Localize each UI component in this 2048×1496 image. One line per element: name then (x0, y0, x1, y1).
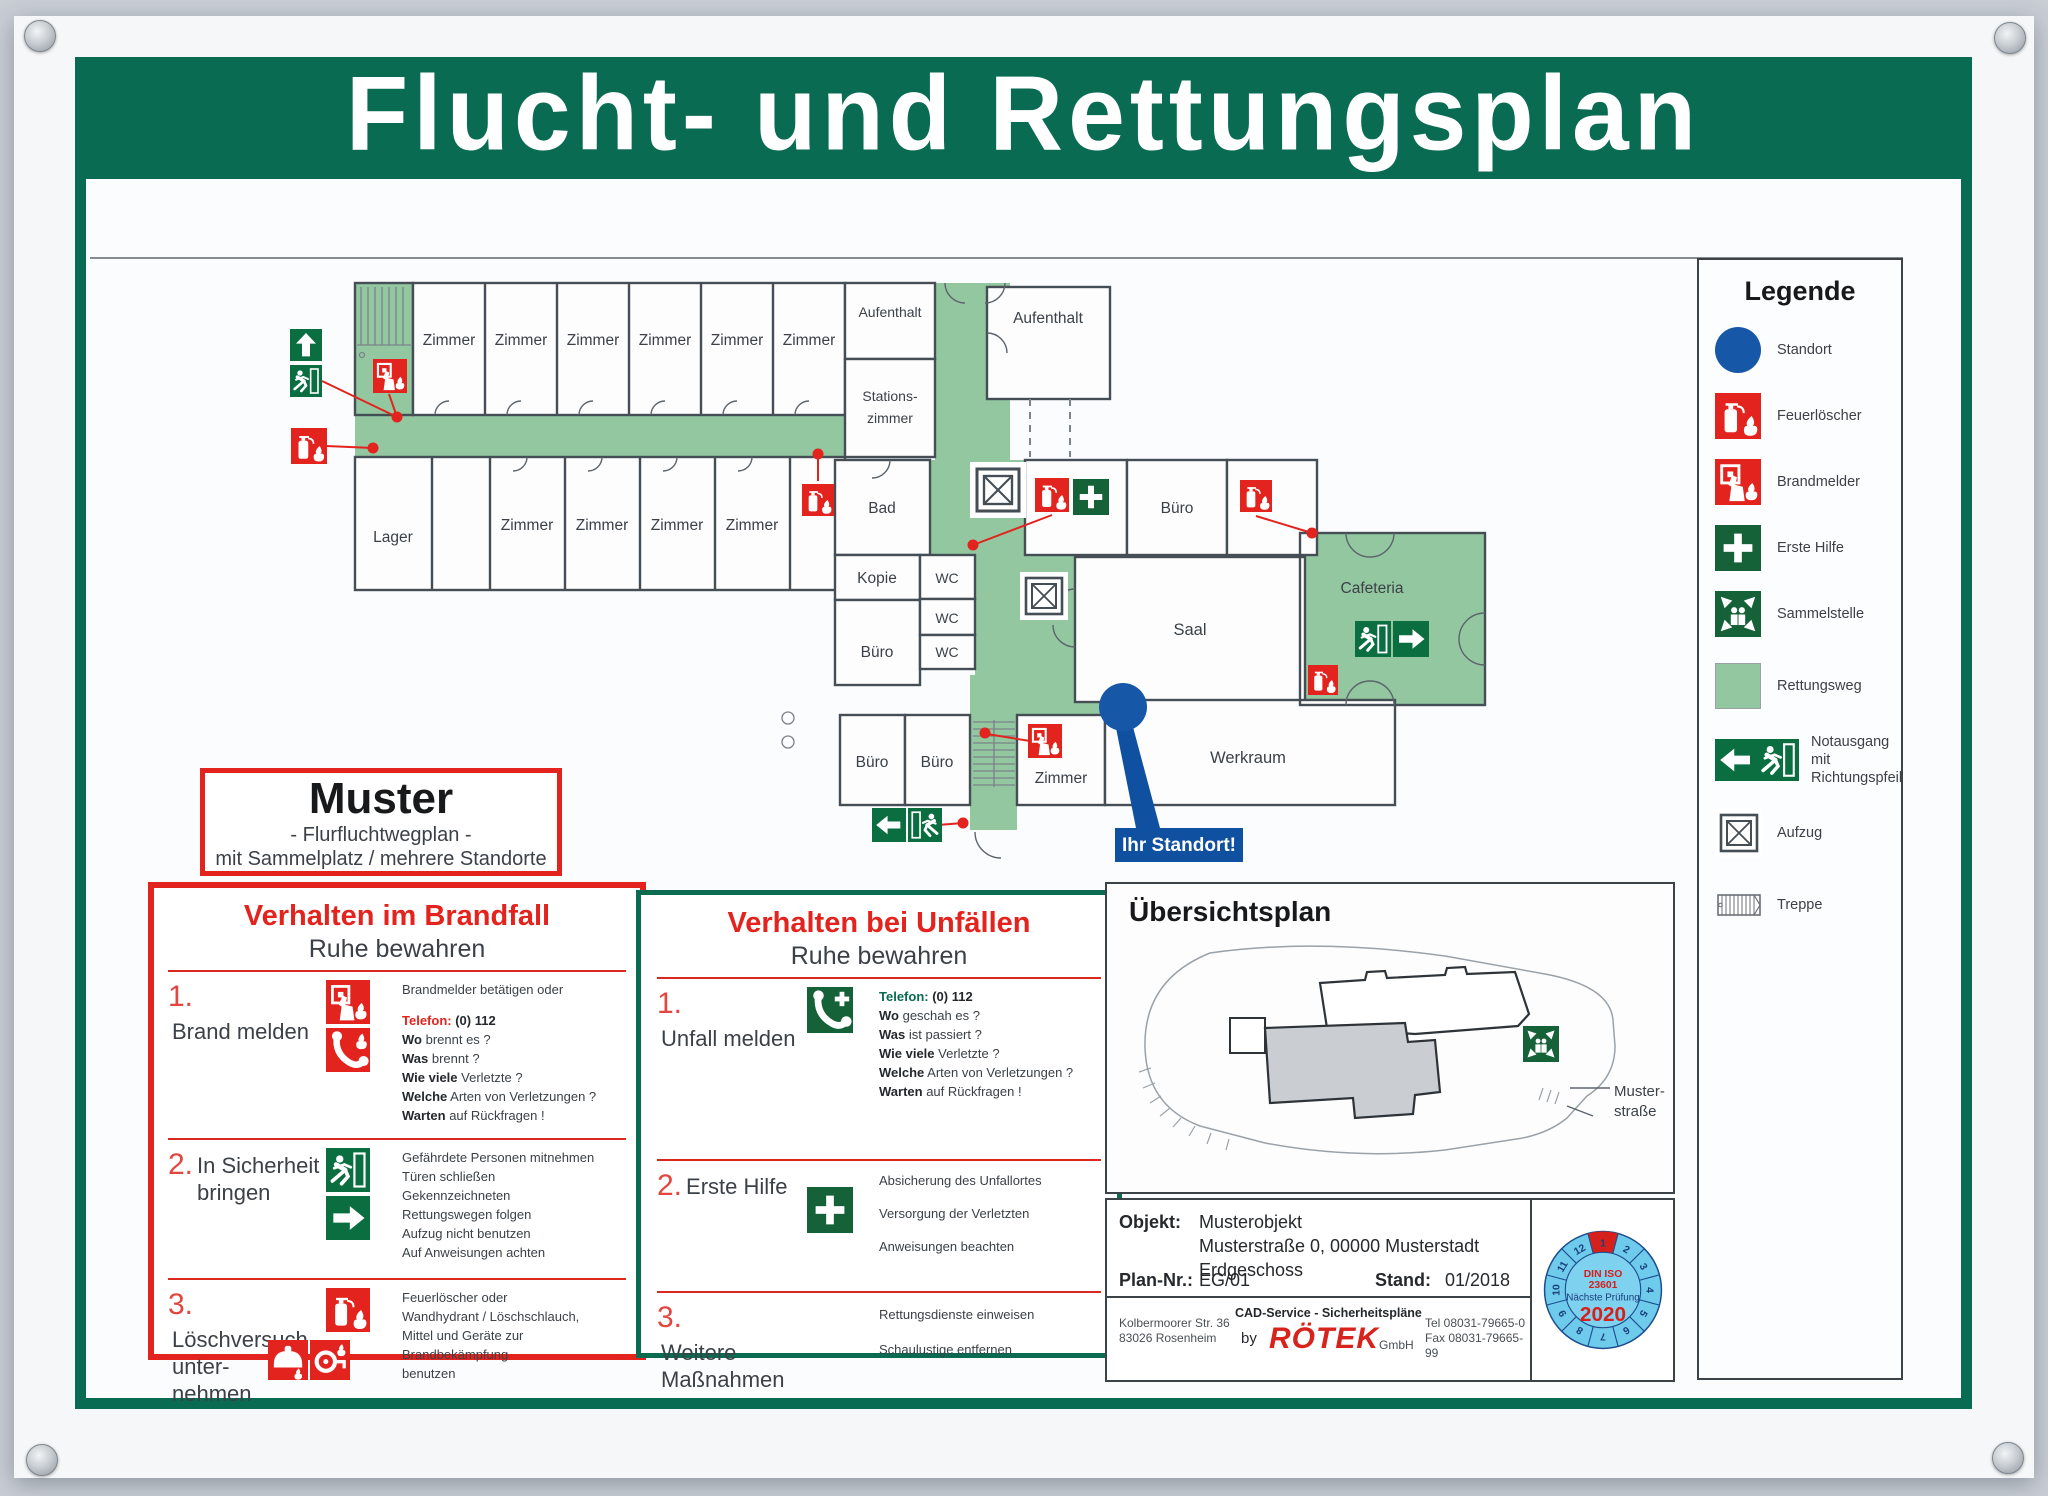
legend-item-standort: Standort (1715, 327, 1901, 373)
stairs-icon (1715, 881, 1765, 929)
location-callout: Ihr Standort! (1122, 835, 1236, 856)
rotek-logo: RÖTEK (1269, 1322, 1379, 1356)
legend-item-erste-hilfe: Erste Hilfe (1715, 525, 1901, 571)
svg-text:Aufenthalt: Aufenthalt (1013, 310, 1083, 327)
fire-phone-icon (326, 1028, 370, 1072)
standort-icon (1715, 327, 1761, 373)
svg-text:Zimmer: Zimmer (651, 517, 704, 534)
svg-text:Bad: Bad (868, 500, 896, 517)
svg-text:23601: 23601 (1588, 1280, 1617, 1291)
fire-extinguisher-icon (326, 1288, 370, 1332)
svg-text:Zimmer: Zimmer (495, 332, 548, 349)
overview-title: Übersichtsplan (1129, 896, 1673, 928)
emergency-exit-icon (290, 365, 322, 397)
step-loeschversuch: 3.Löschversuchunter-nehmen Feuerlöscher … (168, 1280, 626, 1406)
svg-text:Aufenthalt: Aufenthalt (858, 304, 921, 320)
escape-route-swatch (1715, 663, 1761, 709)
svg-text:Zimmer: Zimmer (423, 332, 476, 349)
svg-text:zimmer: zimmer (867, 410, 913, 426)
exit-arrow-left-icon (872, 808, 906, 842)
legend-item-brandmelder: Brandmelder (1715, 459, 1901, 505)
svg-text:7: 7 (1599, 1330, 1605, 1341)
plan-info-box: Objekt: Musterobjekt Musterstraße 0, 000… (1105, 1198, 1675, 1382)
svg-text:1: 1 (1600, 1239, 1606, 1250)
svg-text:straße: straße (1614, 1103, 1657, 1120)
fire-alarm-icon (373, 359, 407, 393)
step-in-sicherheit: 2.In Sicherheitbringen Gefährdete Person… (168, 1140, 626, 1280)
svg-text:Zimmer: Zimmer (576, 517, 629, 534)
first-aid-icon (807, 1187, 853, 1233)
exit-arrow-up-icon (290, 329, 322, 361)
elevator-icon (970, 462, 1026, 518)
legend-item-feuerloescher: Feuerlöscher (1715, 393, 1901, 439)
svg-text:Kopie: Kopie (857, 570, 897, 587)
legend-item-sammelstelle: Sammelstelle (1715, 591, 1901, 637)
fire-extinguisher-icon (802, 484, 834, 516)
svg-text:Zimmer: Zimmer (783, 332, 836, 349)
escape-plan-sign: Flucht- und Rettungsplan (0, 0, 2048, 1496)
legend-title: Legende (1699, 276, 1901, 307)
step-erste-hilfe: 2.Erste Hilfe Absicherung des Unfallorte… (657, 1161, 1101, 1293)
fire-alarm-icon (1028, 724, 1062, 758)
fire-extinguisher-icon (1035, 478, 1069, 512)
svg-text:Zimmer: Zimmer (711, 332, 764, 349)
svg-text:Büro: Büro (861, 644, 894, 661)
step-unfall-melden: 1.Unfall melden Telefon: (0) 112 Wo gesc… (657, 979, 1101, 1161)
legend-item-rettungsweg: Rettungsweg (1715, 663, 1901, 709)
legend-item-aufzug: Aufzug (1715, 809, 1901, 857)
svg-text:WC: WC (935, 644, 958, 660)
panel-title: Verhalten im Brandfall (168, 900, 626, 933)
svg-text:Zimmer: Zimmer (639, 332, 692, 349)
svg-text:Nächste Prüfung: Nächste Prüfung (1566, 1292, 1640, 1303)
svg-text:Zimmer: Zimmer (567, 332, 620, 349)
exit-arrow-right-icon (326, 1196, 370, 1240)
mount-screw-icon (1992, 1442, 2024, 1474)
svg-text:2020: 2020 (1579, 1303, 1625, 1326)
exit-arrow-left-icon (1715, 739, 1757, 781)
svg-text:Zimmer: Zimmer (1035, 770, 1088, 787)
svg-text:Saal: Saal (1173, 621, 1206, 639)
fire-helmet-icon (268, 1340, 308, 1380)
walls (355, 283, 1485, 805)
fire-extinguisher-icon (1715, 393, 1761, 439)
assembly-point-icon (1715, 591, 1761, 637)
fire-alarm-icon (326, 980, 370, 1024)
page-title: Flucht- und Rettungsplan (346, 53, 1701, 175)
svg-text:Zimmer: Zimmer (501, 517, 554, 534)
inspection-badge-box: 1 2 3 4 5 6 7 8 9 10 11 12 DIN ISO 23601… (1530, 1200, 1673, 1380)
svg-text:WC: WC (935, 610, 958, 626)
step-brand-melden: 1.Brand melden Brandmelder betätigen ode… (168, 972, 626, 1140)
mount-screw-icon (1994, 22, 2026, 54)
inspection-badge: 1 2 3 4 5 6 7 8 9 10 11 12 DIN ISO 23601… (1537, 1224, 1669, 1356)
svg-text:Büro: Büro (1161, 500, 1194, 517)
mount-screw-icon (26, 1444, 58, 1476)
svg-text:Lager: Lager (373, 529, 413, 546)
accident-instructions-panel: Verhalten bei Unfällen Ruhe bewahren 1.U… (636, 890, 1122, 1358)
emergency-exit-icon (326, 1148, 370, 1192)
stand-label: Stand: (1375, 1270, 1431, 1291)
fire-extinguisher-icon (1240, 480, 1272, 512)
assembly-point-icon (1523, 1026, 1559, 1062)
svg-text:Büro: Büro (921, 754, 954, 771)
svg-text:4: 4 (1643, 1287, 1654, 1293)
mount-screw-icon (24, 20, 56, 52)
emergency-exit-icon (1757, 739, 1799, 781)
svg-text:DIN ISO: DIN ISO (1583, 1269, 1622, 1280)
svg-text:Zimmer: Zimmer (726, 517, 779, 534)
first-aid-icon (1073, 479, 1109, 515)
muster-title: Muster (205, 775, 557, 823)
fire-extinguisher-icon (291, 428, 327, 464)
fire-alarm-icon (1715, 459, 1761, 505)
svg-text:Stations-: Stations- (862, 388, 918, 404)
elevator-icon (1715, 809, 1763, 857)
svg-text:Werkraum: Werkraum (1210, 749, 1286, 767)
fire-hose-icon (310, 1340, 350, 1380)
panel-title: Verhalten bei Unfällen (657, 907, 1101, 940)
exit-arrow-right-icon (1393, 621, 1429, 657)
site-overview-panel: Übersichtsplan Muster- straße (1105, 882, 1675, 1194)
objekt-label: Objekt: (1119, 1212, 1181, 1233)
legend-item-notausgang: Notausgang mit Richtungspfeil (1715, 733, 1901, 787)
muster-box: Muster - Flurfluchtwegplan - mit Sammelp… (200, 768, 562, 876)
svg-text:WC: WC (935, 570, 958, 586)
svg-text:Cafeteria: Cafeteria (1341, 580, 1404, 597)
elevator-icon (1020, 572, 1068, 620)
emergency-exit-icon (1355, 621, 1391, 657)
title-banner: Flucht- und Rettungsplan (75, 57, 1972, 170)
site-plan: Muster- straße (1115, 928, 1665, 1178)
fire-instructions-panel: Verhalten im Brandfall Ruhe bewahren 1.B… (148, 882, 646, 1360)
plannr-label: Plan-Nr.: (1119, 1270, 1193, 1291)
info-separator (1107, 1296, 1530, 1298)
legend-item-treppe: Treppe (1715, 881, 1901, 929)
emergency-phone-icon (807, 987, 853, 1033)
svg-text:Büro: Büro (856, 754, 889, 771)
legend-panel: Legende Standort Feuerlöscher Brandmelde… (1697, 258, 1903, 1380)
step-weitere-massnahmen: 3.WeitereMaßnahmen Rettungsdienste einwe… (657, 1293, 1101, 1397)
emergency-exit-icon (908, 808, 942, 842)
svg-text:Muster-: Muster- (1614, 1083, 1665, 1100)
fire-extinguisher-icon (1308, 665, 1338, 695)
first-aid-icon (1715, 525, 1761, 571)
svg-text:10: 10 (1551, 1284, 1562, 1296)
